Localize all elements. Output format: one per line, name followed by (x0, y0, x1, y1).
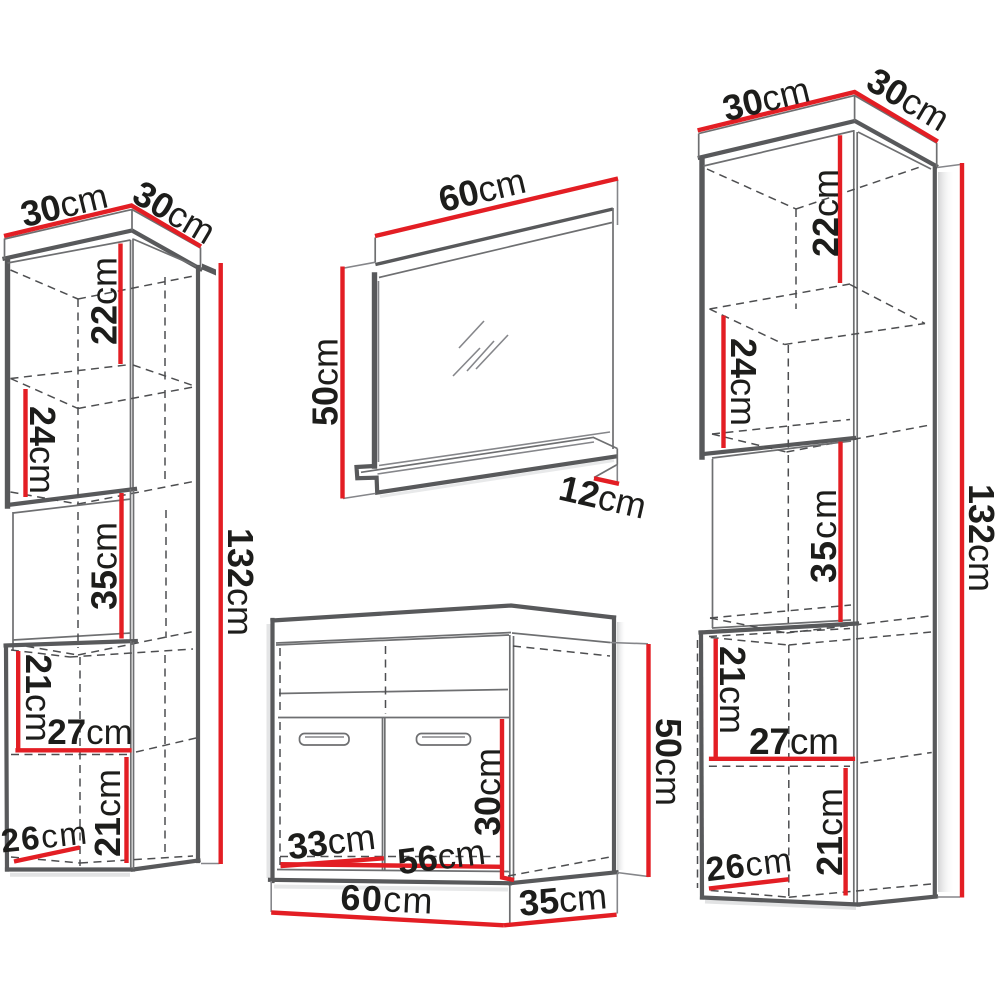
svg-text:35cm: 35cm (84, 522, 125, 610)
svg-text:132cm: 132cm (220, 528, 261, 636)
svg-text:24cm: 24cm (723, 338, 764, 426)
svg-text:132cm: 132cm (961, 484, 1000, 592)
svg-text:22cm: 22cm (805, 169, 846, 257)
svg-text:24cm: 24cm (22, 406, 63, 494)
svg-text:21cm: 21cm (809, 788, 850, 876)
svg-text:35cm: 35cm (803, 489, 844, 583)
svg-text:50cm: 50cm (648, 718, 689, 806)
svg-text:35cm: 35cm (517, 875, 608, 924)
svg-text:30cm: 30cm (467, 748, 508, 836)
svg-text:50cm: 50cm (305, 338, 346, 426)
svg-text:27cm: 27cm (47, 713, 133, 752)
svg-text:60cm: 60cm (340, 877, 434, 922)
svg-text:27cm: 27cm (749, 721, 839, 762)
svg-text:21cm: 21cm (712, 646, 753, 734)
svg-text:22cm: 22cm (84, 257, 125, 345)
svg-text:21cm: 21cm (87, 769, 128, 857)
